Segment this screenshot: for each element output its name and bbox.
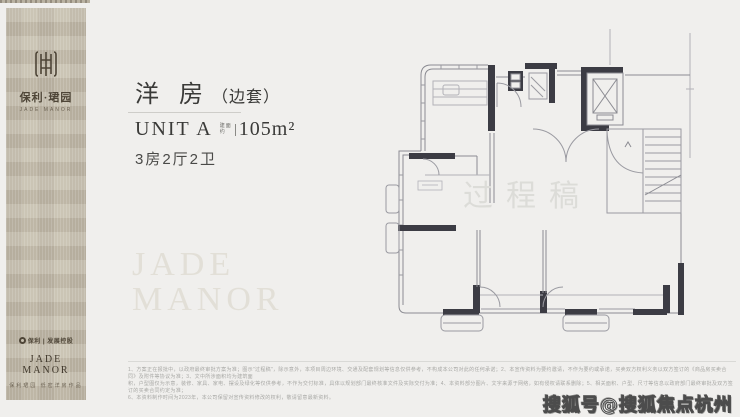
developer-logo-icon bbox=[19, 337, 26, 344]
annotation-boxes bbox=[418, 181, 442, 190]
area-value: 105m² bbox=[239, 118, 296, 141]
brand-monogram-icon bbox=[34, 50, 58, 83]
headline: 洋 房 （边套） bbox=[135, 74, 280, 109]
brand-watermark: JADE MANOR bbox=[132, 247, 284, 317]
brand-block-top: 保利·珺园 JADE MANOR bbox=[6, 50, 86, 113]
brand-watermark-line2: MANOR bbox=[132, 282, 284, 317]
brand-watermark-line1: JADE bbox=[132, 247, 284, 282]
promo-page: 保利·珺园 JADE MANOR 保利 | 发展控股 JADE MANOR 保利… bbox=[0, 0, 740, 417]
elevator bbox=[587, 73, 623, 125]
title-divider bbox=[128, 112, 241, 113]
area-note-line2: 约 bbox=[220, 130, 232, 136]
room-layout: 3房2厅2卫 bbox=[135, 148, 217, 169]
area-note: 建面 约 bbox=[220, 124, 236, 136]
bath-fixtures bbox=[508, 71, 547, 99]
stairs bbox=[607, 129, 681, 213]
sohu-watermark: 搜狐号@搜狐焦点杭州站 bbox=[543, 391, 740, 417]
brand-panel: 保利·珺园 JADE MANOR 保利 | 发展控股 JADE MANOR 保利… bbox=[6, 8, 86, 400]
unit-type-suffix: （边套） bbox=[212, 83, 280, 107]
texture-strip bbox=[0, 0, 90, 3]
kitchen-counter bbox=[433, 81, 487, 105]
developer-logo: 保利 | 发展控股 bbox=[6, 336, 86, 345]
developer-name: 保利 | 发展控股 bbox=[28, 336, 74, 345]
brand-name-en: JADE MANOR bbox=[6, 107, 86, 113]
brand-name-cn: 保利·珺园 bbox=[6, 89, 86, 105]
disclaimer-divider bbox=[128, 361, 736, 362]
brand-footer-tagline: 保利珺园 低密洋房作品 bbox=[6, 382, 86, 389]
disclaimer-line1: 1、方案正在报批中，以政府最终审批方案为准；图示"过程稿"，除示意外，本项目周边… bbox=[128, 367, 734, 381]
draft-watermark: 过程稿 bbox=[463, 171, 592, 215]
brand-footer-en: JADE MANOR bbox=[6, 354, 86, 376]
unit-type-title: 洋 房 bbox=[135, 74, 210, 109]
unit-info-row: UNIT A 建面 约 105m² bbox=[135, 118, 295, 141]
brand-block-bottom: 保利 | 发展控股 JADE MANOR 保利珺园 低密洋房作品 bbox=[6, 336, 86, 389]
unit-label: UNIT A bbox=[135, 118, 213, 141]
